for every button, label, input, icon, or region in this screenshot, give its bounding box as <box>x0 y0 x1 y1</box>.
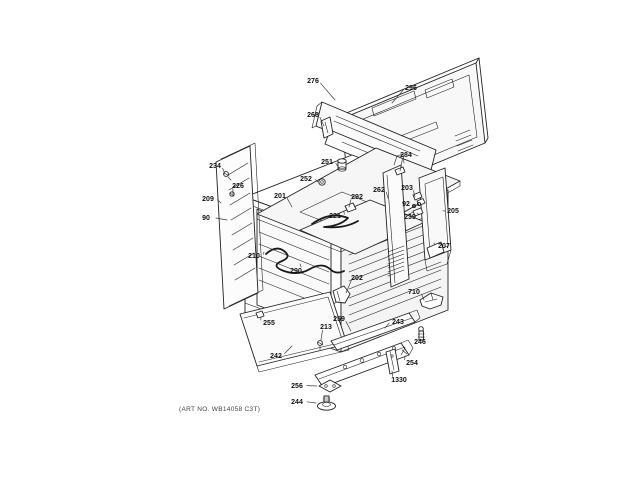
part-label-90: 90 <box>202 215 210 222</box>
part-label-292: 292 <box>351 194 363 201</box>
part-label-202: 202 <box>351 275 363 282</box>
art-number-note: (ART NO. WB14058 C3T) <box>179 406 260 413</box>
part-label-209: 209 <box>202 196 214 203</box>
part-label-203: 203 <box>401 185 413 192</box>
part-label-290: 290 <box>290 268 302 275</box>
part-label-1330: 1330 <box>391 377 407 384</box>
part-label-244: 244 <box>291 399 303 406</box>
part-label-255: 255 <box>263 320 275 327</box>
part-label-239: 239 <box>404 214 416 221</box>
part-label-259: 259 <box>333 316 345 323</box>
part-label-296: 296 <box>405 85 417 92</box>
part-label-205: 205 <box>447 208 459 215</box>
part-label-710: 710 <box>408 289 420 296</box>
part-label-226: 226 <box>232 183 244 190</box>
part-label-242: 242 <box>270 353 282 360</box>
part-label-213: 213 <box>320 324 332 331</box>
part-label-92: 92 <box>402 201 410 208</box>
part-label-207: 207 <box>438 243 450 250</box>
part-label-276: 276 <box>307 78 319 85</box>
parts-diagram: 2762962682842512522342262099020129222126… <box>0 0 640 480</box>
part-label-268: 268 <box>307 112 319 119</box>
part-label-234: 234 <box>209 163 221 170</box>
part-label-243: 243 <box>392 319 404 326</box>
part-label-256: 256 <box>291 383 303 390</box>
part-label-221: 221 <box>329 213 341 220</box>
part-label-252: 252 <box>300 176 312 183</box>
leveling-leg-drawing <box>318 380 342 410</box>
part-label-246: 246 <box>414 339 426 346</box>
part-label-262: 262 <box>373 187 385 194</box>
diagram-page: 2762962682842512522342262099020129222126… <box>0 0 640 480</box>
part-label-201: 201 <box>274 193 286 200</box>
leader-line-276 <box>321 83 336 100</box>
part-label-210: 210 <box>248 253 260 260</box>
part-label-251: 251 <box>321 159 333 166</box>
part-label-284: 284 <box>400 152 412 159</box>
part-label-254: 254 <box>406 360 418 367</box>
leader-line-244 <box>307 402 316 403</box>
